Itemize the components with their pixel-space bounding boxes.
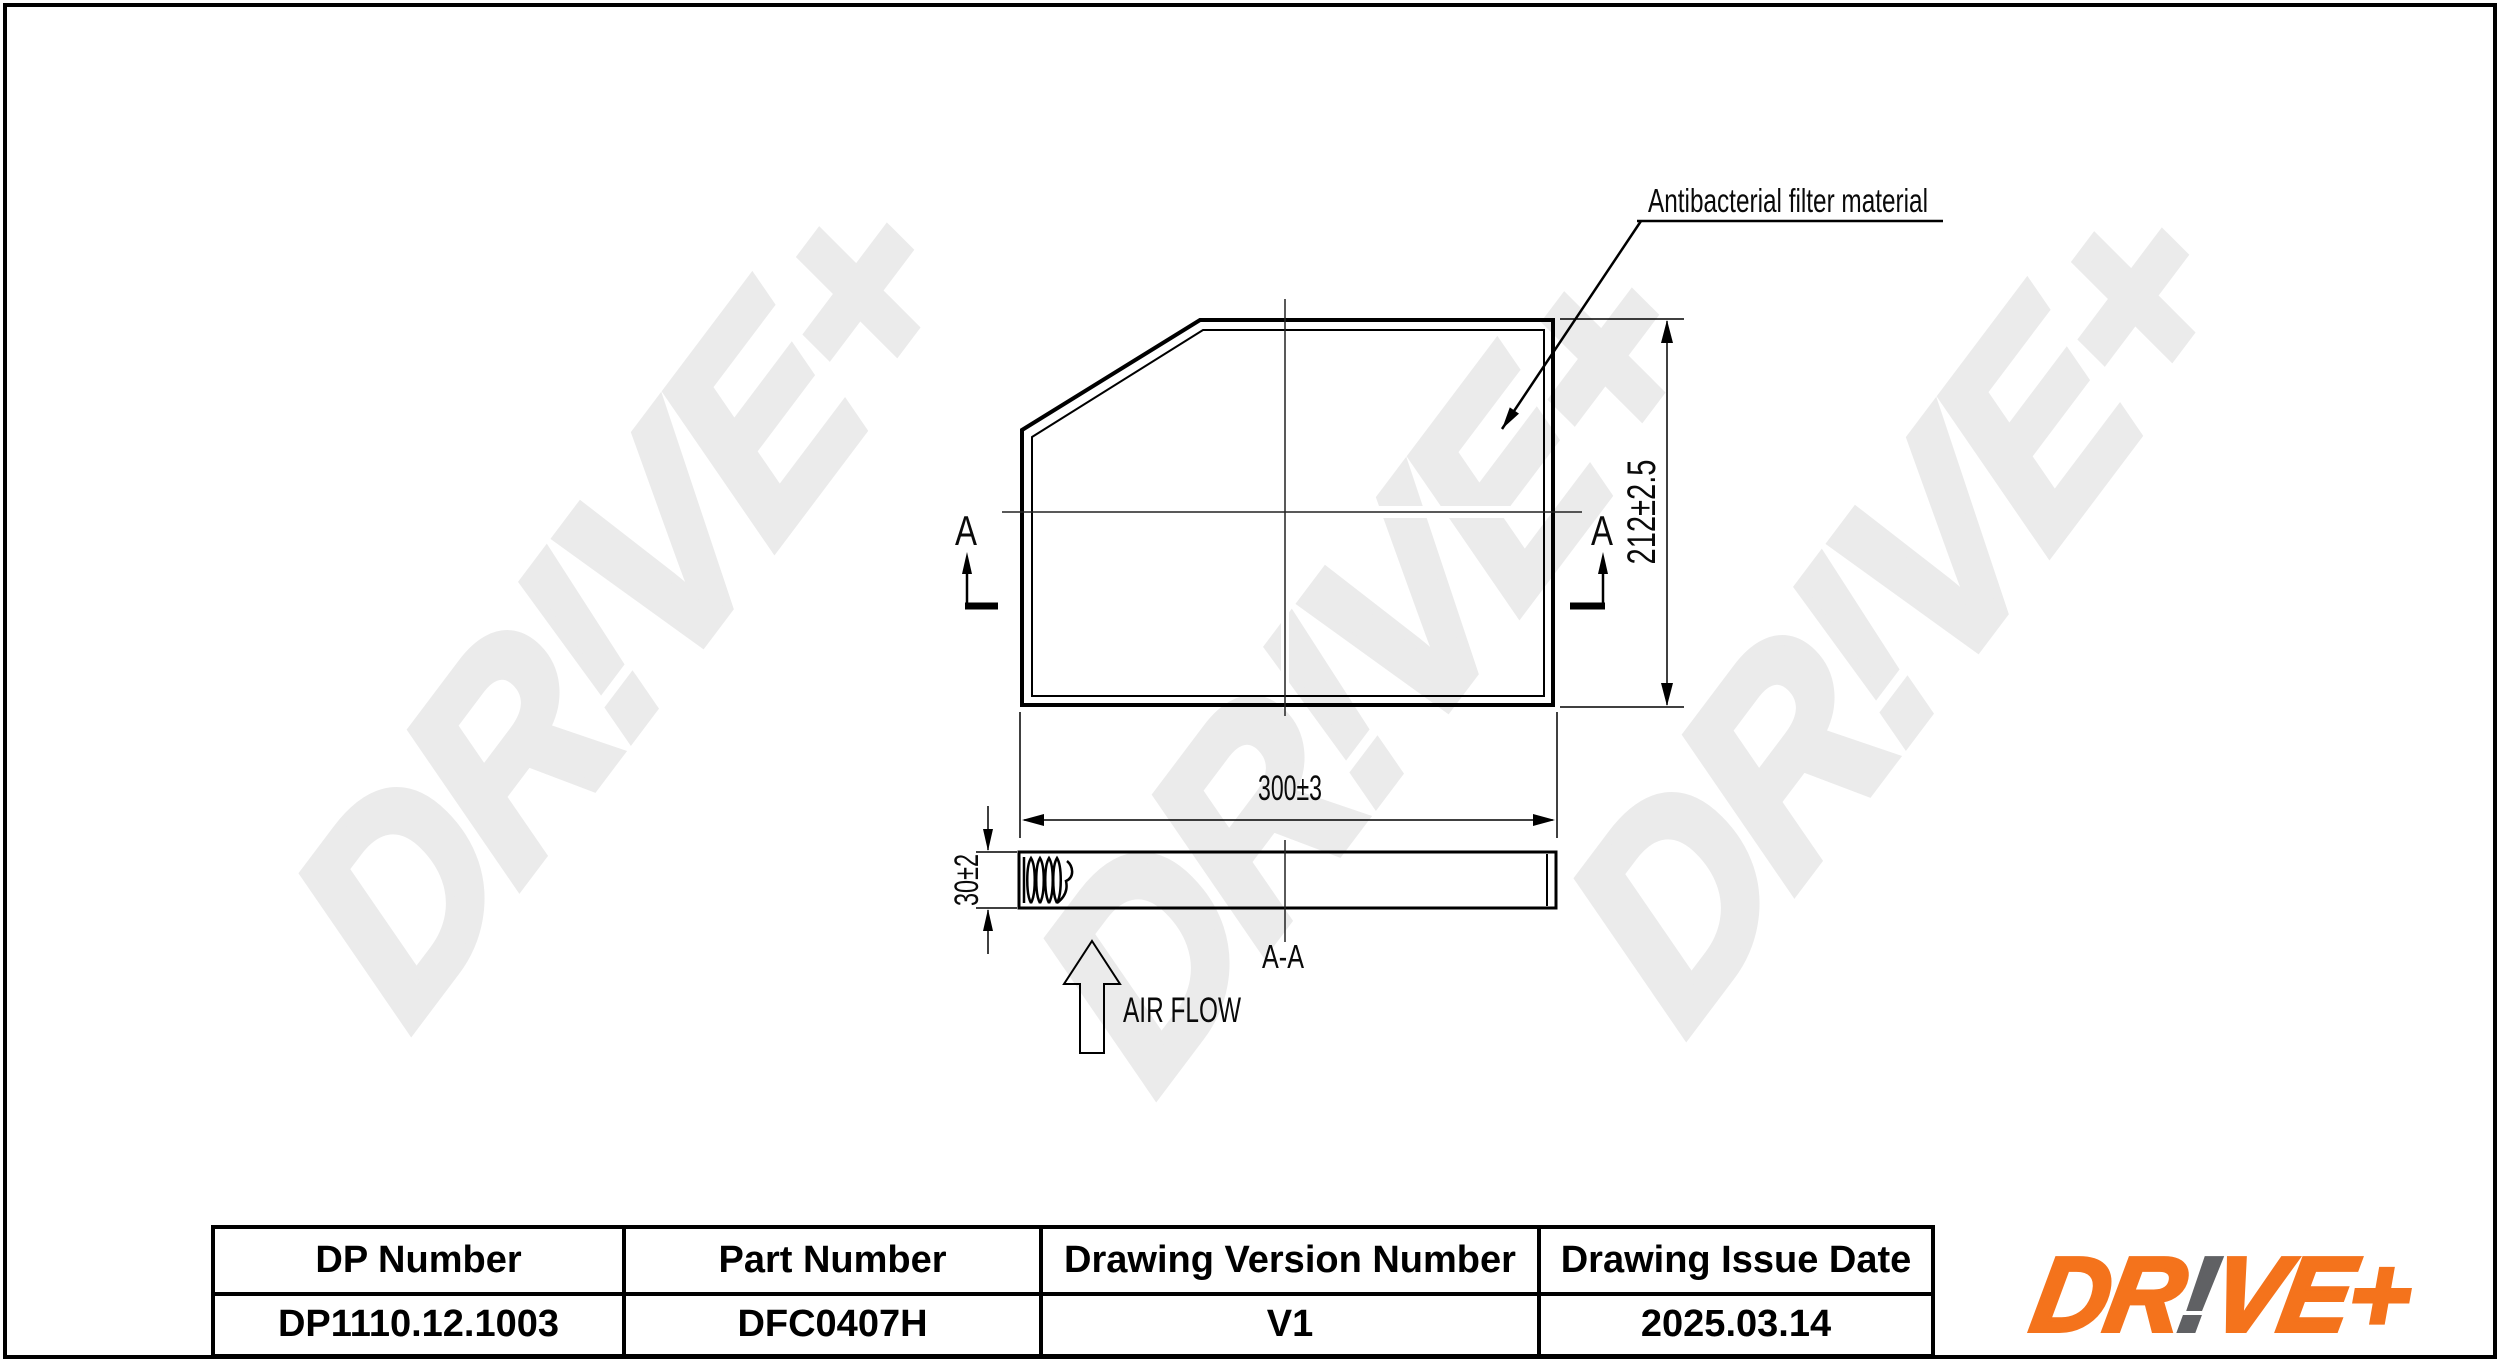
airflow-indicator: AIR FLOW (1064, 941, 1241, 1053)
airflow-label: AIR FLOW (1123, 991, 1241, 1030)
pleat-section-squiggle (1024, 857, 1072, 903)
title-block-table: DP Number Part Number Drawing Version Nu… (211, 1225, 1935, 1358)
table-header-part-number: Part Number (622, 1229, 1039, 1292)
section-view-title: A-A (1262, 938, 1304, 975)
section-marker-right: A (1570, 507, 1613, 606)
table-value-drawing-version: V1 (1039, 1292, 1537, 1355)
table-header-issue-date: Drawing Issue Date (1537, 1229, 1931, 1292)
table-value-dp-number: DP1110.12.1003 (215, 1292, 622, 1355)
logo-text-ve-plus: VE+ (2203, 1235, 2419, 1356)
thickness-dimension: 30±2 (948, 806, 1017, 954)
section-marker-label: A (955, 507, 977, 554)
drawing-sheet: DR!VE+ DR!VE+ DR!VE+ Antibacter (0, 0, 2500, 1362)
thickness-dimension-label: 30±2 (948, 854, 986, 906)
logo-text-dr: DR (2023, 1235, 2191, 1356)
filter-side-view (1019, 840, 1556, 942)
filter-front-view (1002, 299, 1582, 716)
width-dimension-label: 300±3 (1258, 769, 1322, 808)
material-callout: Antibacterial filter material (1502, 182, 1943, 429)
height-dimension: 212±2.5 (1560, 319, 1684, 707)
technical-drawing: Antibacterial filter material 212±2.5 30… (0, 0, 2500, 1362)
leader-arrowhead (1502, 407, 1519, 429)
sheet-border (5, 5, 2495, 1357)
width-dimension: 300±3 (1020, 712, 1557, 838)
section-marker-label: A (1591, 507, 1613, 554)
height-dimension-label: 212±2.5 (1620, 460, 1664, 565)
table-header-dp-number: DP Number (215, 1229, 622, 1292)
section-marker-left: A (955, 507, 998, 606)
callout-label: Antibacterial filter material (1648, 182, 1928, 219)
airflow-arrow-icon (1064, 941, 1120, 1053)
table-header-drawing-version: Drawing Version Number (1039, 1229, 1537, 1292)
table-value-issue-date: 2025.03.14 (1537, 1292, 1931, 1355)
drive-plus-logo: DR!VE+ (1937, 1234, 2500, 1357)
table-value-part-number: DFC0407H (622, 1292, 1039, 1355)
